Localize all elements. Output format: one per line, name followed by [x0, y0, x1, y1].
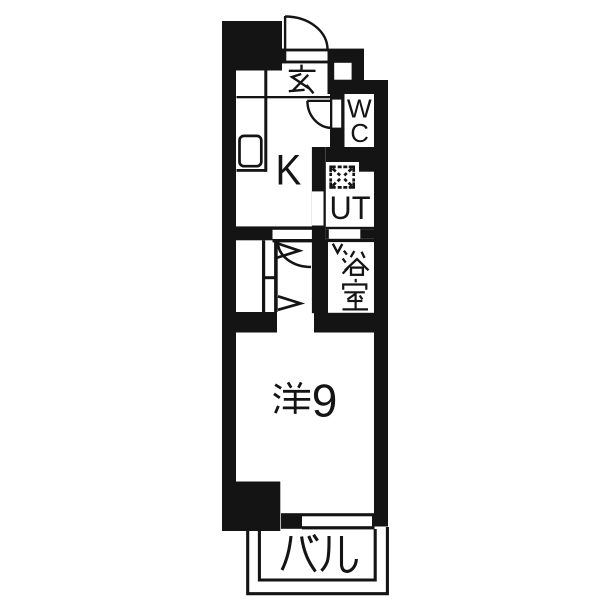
svg-text:K: K: [275, 145, 301, 193]
svg-text:W: W: [347, 93, 372, 123]
svg-text:9: 9: [312, 375, 338, 427]
svg-text:C: C: [350, 120, 368, 148]
svg-text:UT: UT: [329, 189, 370, 226]
